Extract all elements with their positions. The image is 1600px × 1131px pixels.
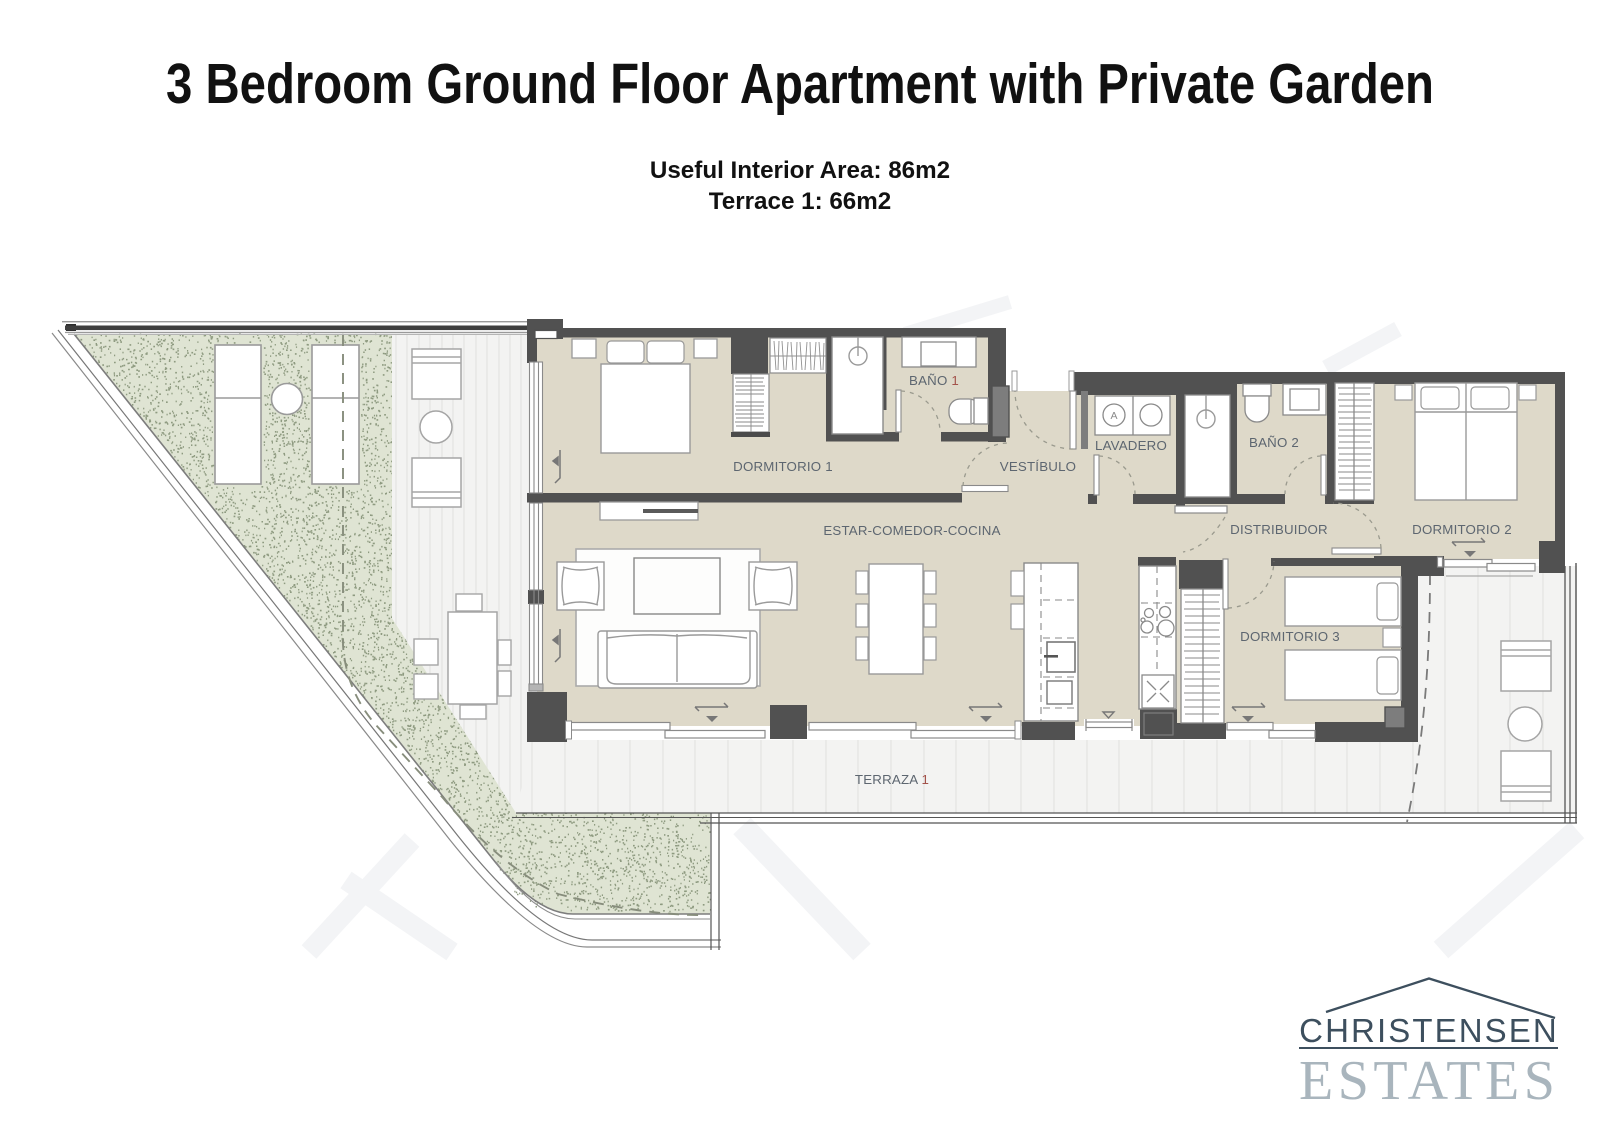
svg-text:A: A bbox=[1110, 410, 1117, 422]
svg-text:TERRAZA 1: TERRAZA 1 bbox=[855, 772, 929, 787]
svg-text:LAVADERO: LAVADERO bbox=[1095, 438, 1167, 453]
svg-text:VESTÍBULO: VESTÍBULO bbox=[1000, 459, 1076, 474]
svg-text:BAÑO 2: BAÑO 2 bbox=[1249, 435, 1299, 450]
svg-text:DISTRIBUIDOR: DISTRIBUIDOR bbox=[1230, 522, 1328, 537]
svg-text:DORMITORIO 3: DORMITORIO 3 bbox=[1240, 629, 1340, 644]
svg-text:ESTAR-COMEDOR-COCINA: ESTAR-COMEDOR-COCINA bbox=[823, 523, 1000, 538]
svg-text:DORMITORIO 2: DORMITORIO 2 bbox=[1412, 522, 1512, 537]
svg-text:BAÑO 1: BAÑO 1 bbox=[909, 373, 959, 388]
svg-text:DORMITORIO 1: DORMITORIO 1 bbox=[733, 459, 833, 474]
